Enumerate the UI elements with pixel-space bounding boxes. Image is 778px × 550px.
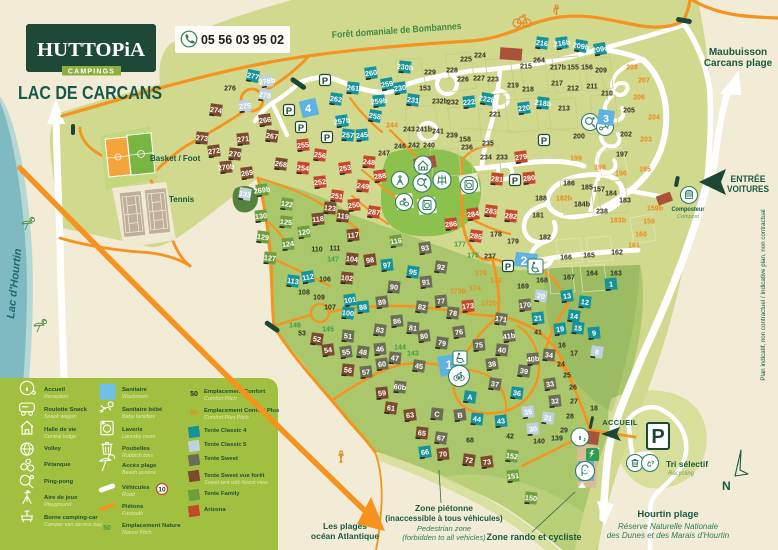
svg-text:203: 203 [640, 137, 652, 144]
svg-text:282: 282 [504, 211, 517, 221]
svg-text:Pedestrian zone: Pedestrian zone [417, 524, 471, 533]
svg-text:176: 176 [475, 271, 487, 278]
svg-text:139: 139 [551, 436, 563, 443]
svg-text:127: 127 [263, 253, 276, 263]
svg-text:251: 251 [330, 191, 343, 202]
svg-text:Comfort Pitch: Comfort Pitch [204, 396, 237, 402]
svg-text:Tri sélectif: Tri sélectif [666, 459, 708, 469]
svg-text:P: P [505, 262, 511, 272]
svg-text:67: 67 [436, 433, 445, 443]
svg-text:285: 285 [469, 231, 482, 242]
svg-text:280: 280 [522, 173, 535, 183]
svg-text:Tente Classic 4: Tente Classic 4 [204, 428, 247, 434]
svg-text:188: 188 [535, 196, 547, 203]
svg-text:79: 79 [437, 338, 446, 348]
svg-text:167: 167 [563, 275, 575, 282]
svg-text:183b: 183b [610, 218, 626, 225]
svg-text:178: 178 [490, 232, 502, 239]
svg-text:(forbidden to all vehicles): (forbidden to all vehicles) [402, 533, 486, 542]
svg-text:Baby facilities: Baby facilities [122, 414, 155, 420]
svg-text:18: 18 [590, 406, 598, 413]
svg-text:119: 119 [337, 211, 350, 222]
svg-text:51: 51 [343, 331, 352, 341]
svg-text:60b: 60b [393, 382, 407, 392]
svg-text:Reception: Reception [44, 394, 68, 400]
svg-text:70: 70 [438, 449, 447, 459]
svg-text:123: 123 [323, 203, 336, 213]
svg-text:52: 52 [312, 334, 321, 344]
svg-text:92: 92 [436, 262, 445, 272]
svg-text:236: 236 [461, 145, 473, 152]
svg-text:66: 66 [420, 447, 429, 457]
svg-text:243: 243 [403, 127, 415, 134]
svg-text:244: 244 [386, 123, 398, 130]
svg-text:230: 230 [393, 83, 406, 94]
svg-text:Sweet tent with forest view: Sweet tent with forest view [204, 480, 269, 486]
svg-text:206: 206 [633, 95, 645, 102]
svg-text:281: 281 [490, 174, 503, 184]
svg-text:179: 179 [507, 239, 519, 246]
svg-text:57: 57 [361, 367, 370, 377]
svg-text:230b: 230b [396, 62, 414, 73]
svg-text:110: 110 [311, 247, 322, 254]
svg-text:174: 174 [469, 286, 481, 293]
svg-text:P: P [286, 106, 292, 116]
svg-text:Compost: Compost [677, 214, 699, 220]
svg-text:100: 100 [341, 308, 354, 318]
svg-text:Composteur: Composteur [672, 206, 706, 213]
svg-text:223: 223 [487, 77, 499, 84]
svg-text:159b: 159b [647, 206, 663, 213]
svg-text:Tennis: Tennis [169, 195, 195, 204]
svg-text:262: 262 [329, 94, 342, 105]
svg-text:246: 246 [394, 144, 406, 151]
svg-text:248: 248 [362, 157, 375, 167]
svg-text:Nature Pitch: Nature Pitch [122, 530, 152, 536]
svg-text:162: 162 [611, 250, 623, 257]
svg-text:150: 150 [524, 493, 537, 503]
svg-text:226: 226 [457, 77, 469, 84]
svg-text:Sanitaire: Sanitaire [122, 387, 148, 393]
svg-text:231: 231 [406, 95, 419, 106]
svg-text:266: 266 [258, 115, 271, 126]
svg-text:39: 39 [519, 366, 528, 376]
svg-text:60: 60 [377, 359, 386, 369]
svg-text:Emplacement Confort Plus: Emplacement Confort Plus [204, 408, 280, 414]
svg-text:151: 151 [506, 471, 519, 481]
svg-text:108: 108 [298, 290, 310, 297]
svg-text:217b: 217b [550, 65, 566, 72]
svg-text:158: 158 [459, 137, 471, 144]
svg-text:211: 211 [586, 84, 597, 91]
svg-text:143: 143 [407, 351, 419, 358]
svg-text:118: 118 [312, 214, 325, 224]
svg-text:61: 61 [386, 403, 395, 413]
svg-text:197: 197 [616, 152, 628, 159]
svg-text:238: 238 [596, 209, 608, 216]
svg-text:159: 159 [643, 219, 655, 226]
svg-text:196: 196 [615, 171, 627, 178]
svg-text:202: 202 [620, 132, 632, 139]
svg-text:157: 157 [593, 187, 605, 194]
svg-text:19: 19 [555, 324, 564, 334]
svg-text:245: 245 [355, 130, 368, 140]
svg-text:Basket / Foot: Basket / Foot [150, 154, 201, 163]
svg-text:276: 276 [224, 86, 236, 93]
svg-text:199: 199 [570, 156, 582, 163]
svg-text:28: 28 [566, 414, 574, 421]
svg-text:Véhicules: Véhicules [122, 485, 150, 491]
svg-text:240: 240 [423, 143, 435, 150]
svg-text:78: 78 [448, 308, 457, 318]
svg-text:147: 147 [327, 257, 339, 264]
svg-text:264: 264 [533, 58, 545, 65]
svg-text:31: 31 [543, 413, 552, 423]
svg-text:Beach access: Beach access [122, 470, 156, 476]
svg-text:des Dunes et des Marais d'Hour: des Dunes et des Marais d'Hourtin [607, 531, 730, 540]
svg-text:Tente Classic 5: Tente Classic 5 [204, 442, 247, 448]
svg-text:256: 256 [313, 150, 326, 161]
svg-text:161: 161 [628, 243, 640, 250]
svg-text:260: 260 [364, 68, 377, 79]
svg-text:217: 217 [551, 81, 563, 88]
svg-text:P: P [322, 76, 328, 86]
svg-text:LAC DE CARCANS: LAC DE CARCANS [18, 82, 162, 103]
svg-text:Playground: Playground [44, 502, 72, 508]
svg-text:48: 48 [358, 347, 367, 357]
svg-text:269: 269 [240, 168, 253, 179]
svg-text:Laverie: Laverie [122, 427, 143, 433]
svg-text:17: 17 [570, 351, 578, 358]
svg-text:160: 160 [635, 232, 647, 239]
svg-text:81: 81 [408, 323, 417, 333]
svg-text:227: 227 [473, 76, 485, 83]
svg-text:36: 36 [512, 388, 521, 398]
svg-text:42: 42 [506, 434, 514, 441]
svg-text:278: 278 [258, 90, 271, 101]
svg-text:73: 73 [482, 457, 491, 467]
svg-text:CAMPINGS: CAMPINGS [68, 69, 115, 76]
svg-text:120: 120 [297, 227, 310, 238]
svg-text:140: 140 [533, 439, 545, 446]
svg-text:24: 24 [557, 362, 565, 369]
svg-text:205: 205 [623, 108, 635, 115]
svg-text:37: 37 [490, 379, 499, 389]
svg-text:50: 50 [190, 391, 198, 398]
svg-text:228: 228 [446, 68, 458, 75]
svg-text:234: 234 [480, 155, 492, 162]
svg-text:274: 274 [209, 105, 223, 116]
svg-text:Emplacement Nature: Emplacement Nature [122, 523, 181, 529]
svg-text:270: 270 [228, 149, 241, 159]
svg-text:P: P [512, 176, 518, 186]
svg-text:P: P [298, 123, 304, 133]
svg-text:181: 181 [532, 213, 544, 220]
svg-text:Hourtin plage: Hourtin plage [637, 509, 698, 520]
svg-text:235: 235 [482, 141, 494, 148]
svg-text:175: 175 [467, 253, 479, 260]
svg-text:173b: 173b [450, 289, 466, 296]
svg-text:268: 268 [274, 159, 287, 170]
svg-text:N: N [722, 479, 731, 493]
svg-text:212: 212 [567, 86, 579, 93]
svg-text:284: 284 [466, 209, 480, 220]
svg-text:287: 287 [367, 207, 380, 218]
svg-text:Comfort Plus Pitch: Comfort Plus Pitch [204, 415, 249, 421]
svg-text:166: 166 [560, 255, 572, 262]
svg-text:247: 247 [378, 151, 390, 158]
svg-text:241b: 241b [416, 127, 432, 134]
svg-text:144: 144 [394, 345, 406, 352]
svg-text:288: 288 [373, 171, 386, 182]
svg-text:P: P [651, 426, 664, 448]
svg-text:Recycling: Recycling [668, 471, 695, 477]
svg-text:38: 38 [487, 359, 496, 369]
svg-text:125: 125 [279, 217, 292, 227]
svg-text:Sanitaire bébé: Sanitaire bébé [122, 407, 163, 413]
svg-text:261: 261 [346, 83, 359, 93]
svg-text:283: 283 [484, 206, 497, 217]
svg-text:21: 21 [533, 313, 542, 323]
svg-text:45: 45 [414, 361, 423, 371]
svg-text:182b: 182b [556, 196, 572, 203]
svg-text:83: 83 [375, 325, 384, 335]
svg-text:Pétanque: Pétanque [44, 462, 71, 468]
svg-text:10: 10 [158, 487, 166, 494]
svg-text:271: 271 [236, 134, 249, 144]
svg-text:76: 76 [454, 327, 463, 337]
svg-text:13: 13 [562, 291, 571, 301]
svg-text:15: 15 [573, 323, 582, 333]
svg-text:ENTRÉE: ENTRÉE [731, 174, 766, 184]
svg-text:209: 209 [595, 68, 607, 75]
svg-text:Zone piétonne: Zone piétonne [415, 503, 473, 513]
svg-text:32: 32 [550, 396, 559, 406]
svg-text:117: 117 [347, 230, 360, 240]
svg-text:46: 46 [375, 344, 384, 354]
svg-text:VOITURES: VOITURES [727, 184, 769, 194]
svg-text:25: 25 [563, 373, 571, 380]
svg-text:90: 90 [389, 282, 398, 292]
svg-text:208: 208 [626, 65, 638, 72]
svg-text:98: 98 [365, 255, 374, 265]
svg-text:207: 207 [638, 78, 650, 85]
svg-text:41b: 41b [502, 331, 516, 342]
svg-text:77: 77 [436, 296, 445, 306]
svg-text:80: 80 [419, 331, 428, 341]
svg-text:155: 155 [567, 65, 579, 72]
svg-text:267: 267 [265, 131, 278, 142]
svg-text:129: 129 [256, 232, 269, 243]
svg-text:104: 104 [345, 254, 359, 264]
svg-text:242: 242 [408, 143, 420, 150]
svg-text:116: 116 [390, 236, 403, 247]
svg-text:168: 168 [536, 278, 548, 285]
svg-text:88: 88 [358, 302, 367, 312]
svg-text:254: 254 [296, 163, 310, 173]
svg-text:224: 224 [474, 53, 486, 60]
svg-text:183: 183 [619, 198, 631, 205]
svg-text:113: 113 [287, 276, 300, 287]
svg-text:102: 102 [340, 273, 353, 283]
svg-text:33: 33 [545, 379, 554, 389]
svg-text:232: 232 [447, 100, 459, 107]
svg-text:218b: 218b [534, 98, 552, 109]
svg-text:Accès plage: Accès plage [122, 463, 157, 469]
svg-text:146: 146 [289, 323, 301, 330]
svg-text:Emplacement Confort: Emplacement Confort [204, 389, 265, 395]
svg-text:26: 26 [569, 385, 577, 392]
svg-text:59: 59 [377, 388, 386, 398]
svg-text:215: 215 [520, 64, 532, 71]
svg-text:153: 153 [419, 86, 431, 93]
svg-text:Zone rando et cycliste: Zone rando et cycliste [486, 532, 581, 542]
svg-text:HUTTOPiA: HUTTOPiA [37, 39, 146, 61]
svg-text:122: 122 [280, 199, 293, 210]
svg-text:63: 63 [405, 410, 414, 420]
svg-text:30: 30 [528, 424, 537, 434]
svg-text:Halle de vie: Halle de vie [44, 427, 77, 433]
svg-text:222: 222 [462, 97, 475, 107]
svg-text:Plan indicatif, non contractue: Plan indicatif, non contractuel / Indica… [760, 209, 767, 380]
svg-text:Road: Road [122, 492, 136, 498]
svg-text:184b: 184b [574, 202, 590, 209]
svg-text:82: 82 [417, 302, 426, 312]
svg-text:156: 156 [581, 65, 593, 72]
svg-text:172: 172 [490, 278, 502, 285]
svg-text:89: 89 [377, 297, 386, 307]
svg-text:72: 72 [464, 455, 473, 465]
svg-text:169: 169 [517, 284, 529, 291]
svg-text:Réserve Naturelle Nationale: Réserve Naturelle Nationale [618, 522, 719, 531]
svg-text:232b: 232b [432, 99, 448, 106]
svg-text:184: 184 [605, 191, 617, 198]
svg-text:Ping-pong: Ping-pong [44, 479, 74, 485]
svg-text:68: 68 [466, 438, 474, 445]
svg-text:Rubbish bins: Rubbish bins [122, 453, 153, 459]
svg-text:20: 20 [536, 291, 545, 301]
svg-text:12: 12 [580, 297, 589, 307]
svg-text:91: 91 [421, 277, 430, 287]
svg-text:35: 35 [523, 407, 532, 417]
svg-text:198: 198 [594, 165, 606, 172]
svg-text:152: 152 [505, 451, 518, 462]
svg-text:Arizona: Arizona [204, 507, 226, 513]
svg-text:65: 65 [417, 428, 426, 438]
svg-text:(inaccessible à tous véhicules: (inaccessible à tous véhicules) [385, 514, 503, 523]
svg-text:204: 204 [648, 115, 660, 122]
svg-text:195: 195 [639, 167, 651, 174]
svg-text:225: 225 [460, 57, 472, 64]
svg-text:216: 216 [535, 38, 548, 49]
svg-text:41: 41 [534, 330, 542, 337]
svg-text:Piétons: Piétons [122, 504, 144, 510]
svg-text:185: 185 [581, 185, 593, 192]
svg-text:253: 253 [338, 163, 351, 174]
svg-text:Footpath: Footpath [122, 511, 143, 517]
svg-text:270b: 270b [217, 162, 235, 173]
svg-text:170: 170 [518, 300, 531, 310]
svg-text:171: 171 [494, 314, 507, 325]
svg-text:50: 50 [103, 525, 111, 532]
svg-text:111: 111 [330, 246, 341, 253]
svg-text:241: 241 [432, 129, 444, 136]
svg-text:252: 252 [313, 177, 326, 187]
svg-text:124: 124 [281, 239, 295, 249]
svg-text:239: 239 [446, 133, 458, 140]
svg-text:145: 145 [322, 327, 334, 334]
svg-text:27: 27 [570, 399, 578, 406]
svg-text:Borne camping-car: Borne camping-car [44, 515, 98, 521]
svg-text:Snack wagon: Snack wagon [44, 414, 76, 420]
svg-text:249: 249 [356, 181, 369, 191]
svg-text:86: 86 [392, 316, 401, 326]
svg-text:182: 182 [539, 235, 551, 242]
svg-text:165: 165 [583, 253, 595, 260]
svg-text:107: 107 [324, 305, 336, 312]
svg-text:106: 106 [319, 277, 331, 284]
svg-text:3: 3 [603, 113, 609, 125]
svg-text:4: 4 [305, 103, 312, 115]
svg-text:55: 55 [341, 347, 350, 357]
svg-text:255: 255 [296, 140, 309, 150]
svg-text:Tente Sweet: Tente Sweet [204, 456, 238, 462]
svg-text:233: 233 [496, 155, 508, 162]
svg-text:257: 257 [341, 130, 354, 140]
svg-text:ACCUEIL: ACCUEIL [602, 418, 638, 427]
svg-text:P: P [541, 136, 547, 146]
svg-text:Carcans plage: Carcans plage [704, 58, 773, 69]
svg-text:210: 210 [601, 91, 613, 98]
svg-text:Roulotte Snack: Roulotte Snack [44, 407, 88, 413]
svg-text:101: 101 [343, 295, 356, 306]
svg-text:218: 218 [522, 87, 534, 94]
svg-text:Washroom: Washroom [122, 394, 148, 400]
svg-text:95: 95 [408, 267, 417, 277]
svg-text:229: 229 [424, 70, 436, 77]
svg-text:109: 109 [313, 295, 325, 302]
svg-text:163: 163 [610, 271, 622, 278]
svg-text:Camper van service bay: Camper van service bay [44, 522, 102, 528]
svg-text:75: 75 [474, 340, 483, 350]
svg-text:Maubuisson: Maubuisson [709, 47, 767, 58]
svg-text:250: 250 [347, 200, 360, 210]
svg-text:Laundry room: Laundry room [122, 434, 156, 440]
svg-text:164: 164 [586, 271, 598, 278]
svg-text:océan Atlantique: océan Atlantique [311, 531, 379, 541]
svg-text:Tente Family: Tente Family [204, 491, 240, 497]
svg-text:220: 220 [517, 103, 530, 114]
svg-text:Tente Sweet vue forêt: Tente Sweet vue forêt [204, 473, 264, 479]
svg-text:177: 177 [454, 242, 466, 249]
svg-text:47: 47 [390, 353, 399, 363]
svg-text:213: 213 [558, 106, 570, 113]
svg-text:50: 50 [190, 410, 198, 417]
svg-text:05 56 03 95 02: 05 56 03 95 02 [201, 32, 284, 47]
svg-text:221: 221 [489, 112, 501, 119]
svg-text:43: 43 [496, 416, 505, 426]
svg-text:275: 275 [238, 101, 251, 111]
svg-text:172b: 172b [481, 301, 497, 308]
svg-text:Volley: Volley [44, 446, 62, 452]
svg-text:P: P [324, 133, 330, 143]
svg-text:93: 93 [420, 243, 429, 253]
svg-text:40b: 40b [526, 354, 540, 364]
svg-text:259b: 259b [370, 96, 388, 107]
svg-text:40: 40 [497, 345, 506, 355]
svg-text:272: 272 [207, 146, 220, 157]
svg-text:Central lodge: Central lodge [44, 434, 76, 440]
